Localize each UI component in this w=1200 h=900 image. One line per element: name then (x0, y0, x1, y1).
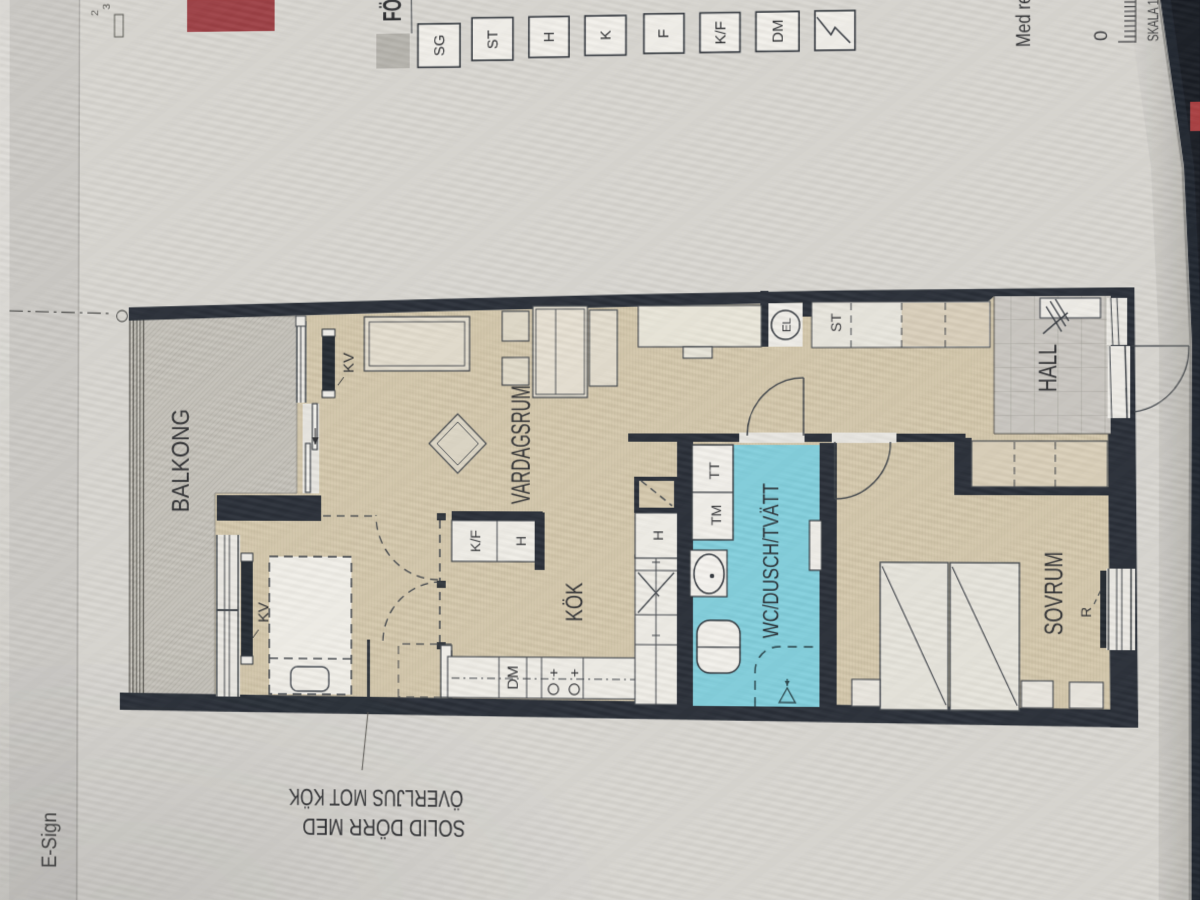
svg-text:3: 3 (101, 3, 113, 9)
svg-text:SOLID DÖRR MED: SOLID DÖRR MED (302, 813, 465, 842)
svg-text:2: 2 (89, 10, 101, 16)
svg-text:TM: TM (708, 505, 724, 526)
svg-text:KV: KV (341, 353, 358, 373)
svg-text:KÖK: KÖK (561, 582, 588, 621)
svg-text:DM: DM (771, 19, 787, 43)
svg-text:K: K (599, 30, 615, 40)
svg-text:WC/DUSCH/TVÄTT: WC/DUSCH/TVÄTT (758, 483, 783, 638)
svg-text:HALL: HALL (1034, 344, 1063, 392)
svg-text:VARDAGSRUM: VARDAGSRUM (506, 385, 536, 504)
svg-text:E-Sign: E-Sign (37, 812, 61, 868)
svg-text:ST: ST (486, 30, 502, 49)
svg-text:EL: EL (781, 317, 793, 332)
svg-text:H: H (542, 31, 558, 42)
svg-text:0: 0 (1090, 30, 1111, 41)
svg-text:ÖVERLJUS MOT KÖK: ÖVERLJUS MOT KÖK (288, 784, 463, 813)
svg-text:Med reservation för eventuella: Med reservation för eventuella ändringar (1013, 0, 1036, 47)
svg-text:R: R (1078, 607, 1094, 618)
svg-text:SG: SG (432, 35, 448, 57)
svg-text:K/F: K/F (713, 21, 729, 45)
svg-text:F: F (656, 29, 672, 38)
svg-text:H: H (650, 530, 666, 540)
svg-text:H: H (513, 536, 529, 546)
svg-text:K/F: K/F (467, 530, 483, 552)
svg-text:DM: DM (505, 666, 522, 690)
svg-text:FÖRKLARINGAR: FÖRKLARINGAR (377, 0, 407, 22)
svg-text:SOVRUM: SOVRUM (1040, 552, 1069, 636)
svg-text:ST: ST (828, 313, 844, 332)
svg-text:BALKONG: BALKONG (167, 409, 194, 513)
svg-text:TT: TT (706, 461, 722, 479)
